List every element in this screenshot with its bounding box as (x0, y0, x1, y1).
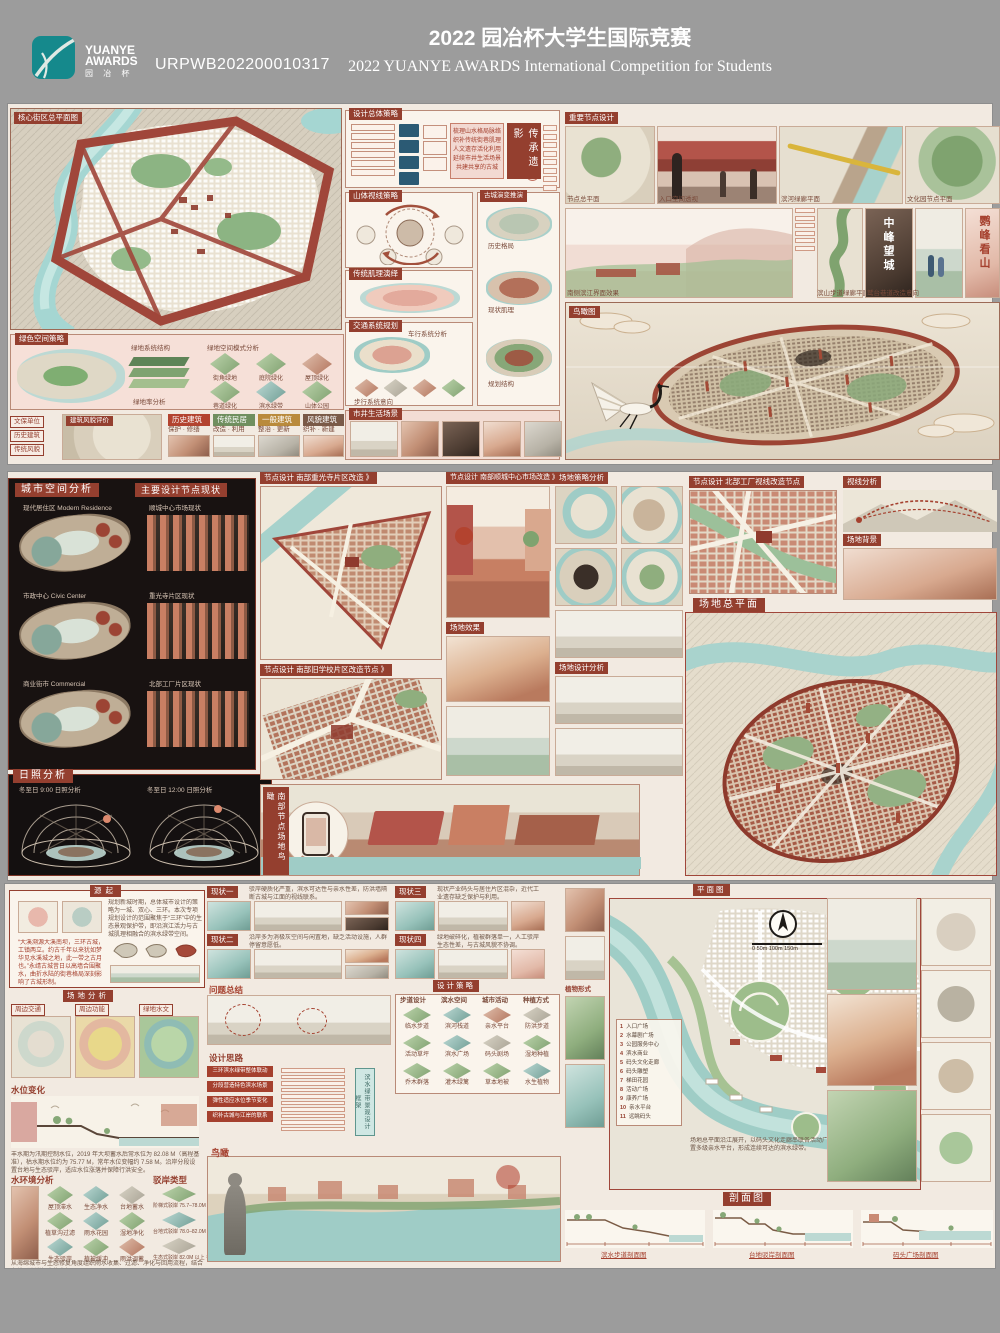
origin-map (18, 901, 58, 933)
overall-strategy-title: 设计总体策略 (349, 108, 402, 120)
design-idea-flow: 三环滨水绿带整体联动 分段营造特色滨水场景 弹性适应水位季节变化 织补古城与江岸… (207, 1064, 391, 1142)
style-card: 一般建筑整治 · 更新 (258, 414, 300, 460)
photo-thumb (213, 435, 255, 457)
tree-canopy (455, 527, 473, 545)
flow-box (543, 142, 557, 148)
photo-thumb (401, 421, 439, 457)
urban-space-title: 城市空间分析 (15, 483, 99, 497)
vertical-title-yingfeng: 鹦峰看山 (976, 215, 992, 271)
evolution-stage-axon (486, 271, 552, 305)
water-level-title: 水位变化 (11, 1084, 45, 1096)
legend-chip: 历史建筑 (10, 430, 44, 442)
statue-silhouette (224, 1185, 246, 1255)
problem-summary-panel: 问题总结 (207, 984, 391, 1046)
style-card: 风貌建筑织补 · 新建 (303, 414, 344, 460)
node-status-title: 主要设计节点现状 (135, 483, 227, 497)
green-tile: 山体公园 (295, 381, 339, 411)
green-tile: 街角绿地 (203, 353, 247, 383)
status-block: 现状二 沿岸多为消极灰空间与闲置地，缺乏活动设施，人群停留意愿低。 (207, 934, 391, 980)
photo-thumb (303, 435, 344, 457)
market-street-perspective (446, 486, 550, 618)
culture-park-plan-image (905, 126, 1000, 204)
photo-thumb (565, 888, 605, 932)
water-level-section (11, 1096, 199, 1148)
node-caption: 节点总平面 (567, 196, 600, 204)
master-plan-title: 场地总平面 (693, 598, 765, 612)
mini-map-column (921, 898, 991, 1190)
traffic-mode-icon (442, 379, 466, 397)
problem-circle (225, 1004, 261, 1036)
flow-box (281, 1075, 345, 1080)
design-idea-label: 设计思路 (209, 1052, 243, 1064)
plant-form-label: 植物形式 (565, 986, 591, 994)
core-district-masterplan-map (10, 108, 342, 330)
water-env-photo (11, 1186, 39, 1260)
photo-thumb (483, 421, 521, 457)
section-caption: 滨水步道剖面图 (601, 1252, 647, 1260)
poster-header: YUANYE AWARDS 园 冶 杯 URPWB202200010317 20… (0, 0, 1000, 96)
traditional-texture-panel: 传统肌理演绎 (345, 270, 473, 318)
sightline-analysis-label: 视线分析 (843, 476, 881, 488)
green-axon-icon (210, 381, 240, 403)
node-caption: 入口空间透视 (659, 196, 698, 204)
flow-box (281, 1120, 345, 1125)
old-city-birdseye (565, 302, 1000, 460)
flow-box (543, 159, 557, 165)
photo-thumb (511, 949, 545, 979)
green-system-axon (17, 349, 125, 403)
green-legend-caption: 绿地率分析 (133, 399, 166, 407)
photo-thumb (345, 901, 389, 915)
flow-box (281, 1081, 345, 1086)
perspective-photo (827, 1090, 917, 1182)
status-section (438, 901, 508, 931)
section-drawing-group: 码头广场剖面图 (861, 1210, 995, 1264)
flow-box-blue (399, 140, 419, 153)
node-status-axon (147, 603, 249, 659)
south-birdseye-label: 南部节点场地鸟瞰 (263, 787, 289, 875)
origin-quote: “大溪溯源大溪南坝，三环古城，工镇两立。约古千年以来犹如梦华见水溪城之地，此一带… (18, 939, 104, 985)
origin-panel: 源起 规划新城时期，总体城市设计的策略为一城、双心、三环。本次专项规划设计的范围… (9, 890, 205, 988)
evolution-stage-caption: 规划结构 (488, 381, 514, 389)
traditional-texture-title: 传统肌理演绎 (349, 268, 402, 280)
flow-box-blue (399, 172, 419, 185)
photo-thumb (565, 1064, 605, 1128)
idea-sub-rows (281, 1068, 345, 1133)
flow-blue-boxes (399, 124, 419, 188)
traffic-axon (354, 337, 430, 373)
site-strategy-title: 场地策略分析 (555, 472, 608, 484)
flow-box (543, 176, 557, 182)
flow-box (281, 1127, 345, 1132)
flow-right-boxes (543, 125, 557, 193)
node-status-axon (147, 691, 249, 747)
traffic-mode-icon (413, 379, 437, 397)
style-card: 历史建筑保护 · 修缮 (168, 414, 210, 460)
site-background-photo (843, 548, 997, 600)
person-silhouette (672, 153, 682, 199)
poster-title-en: 2022 YUANYE AWARDS International Competi… (240, 58, 880, 76)
bank-type-list: 阶梯式驳岸 75.7–78.0M 枯水期 台地式驳岸 78.0–82.0M 常水… (153, 1186, 205, 1262)
traffic-mode-icon (384, 379, 408, 397)
logo-text-cn: 园 冶 杯 (85, 68, 138, 79)
building-evaluation-label: 建筑风貌评价 (66, 416, 113, 426)
temple-district-plan (260, 486, 442, 660)
photo-thumb (345, 917, 389, 931)
masterplan-label: 核心街区总平面图 (14, 112, 82, 124)
waterfront-birdseye (207, 1156, 561, 1262)
node-status-axon (147, 515, 249, 571)
node-status-label: 重光寺片区现状 (149, 593, 195, 601)
idea-box: 弹性适应水位季节变化 (207, 1096, 273, 1107)
riverfront-panorama-image (565, 208, 793, 298)
water-env-note: 从海绵城市与生态修复角度组织雨水收集、过滤、净化与回用流程，结合台地驳岸消解水位… (11, 1260, 203, 1268)
plan-legend: 1入口广场 2水幕剧广场 3公园服务中心 4滨水商业 5码头文化走廊 6码头雕塑… (616, 1019, 682, 1126)
flow-box (281, 1114, 345, 1119)
flow-left-boxes (351, 124, 395, 178)
status-section (254, 901, 342, 931)
birdseye-label: 鸟瞰图 (569, 306, 600, 318)
texture-axon (360, 283, 460, 313)
flow-box (351, 169, 395, 176)
photo-thumb (524, 421, 562, 457)
photo-thumb (350, 421, 398, 457)
section-drawing-group: 台地驳岸剖面图 (713, 1210, 855, 1264)
temple-perspective-image (657, 126, 777, 204)
node4-title: 节点设计 南部旧学校片区改造节点 》 (260, 664, 392, 676)
node-caption: 南侧滨江界面效果 (567, 290, 619, 298)
status-section (438, 949, 508, 979)
status-map (207, 949, 251, 979)
status-block: 现状三 现状产业码头与居住片区混杂，近代工业遗存缺乏保护与利用。 (395, 886, 545, 932)
city-evolution-title: 古城演变推演 (480, 190, 527, 202)
idea-box: 三环滨水绿带整体联动 (207, 1066, 273, 1077)
problem-circle (297, 1008, 327, 1034)
sunpath-dome (15, 793, 137, 873)
analysis-map-hydro (139, 1016, 199, 1078)
yuanye-logo-icon (32, 36, 75, 79)
bank-types-title: 驳岸类型 (153, 1174, 187, 1186)
node-caption: 滨河绿廊平面 (781, 196, 820, 204)
city-evolution-panel: 古城演变推演 历史格局 现状肌理 规划结构 (477, 192, 560, 406)
photo-thumb (345, 949, 389, 963)
green-axon-icon (302, 381, 332, 403)
traffic-plan-panel: 交通系统规划 车行系统分析 步行系统意向 (345, 322, 473, 406)
urban-space-analysis-panel: 城市空间分析 主要设计节点现状 现代居住区 Modern Residence 市… (8, 478, 256, 770)
green-axon-icon (210, 353, 240, 375)
city-axon (16, 597, 133, 664)
node3-title: 节点设计 北部工厂视线改造节点 (689, 476, 804, 488)
flow-box (543, 134, 557, 140)
green-corridor-plan-image (817, 208, 863, 298)
strategy-mini-map (621, 486, 683, 544)
person-silhouette (928, 255, 934, 277)
city-axon (16, 685, 133, 752)
photo-thumb (345, 965, 389, 979)
water-env-title: 水环境分析 (11, 1174, 54, 1186)
master-site-plan (685, 612, 997, 876)
green-axon-icon (302, 353, 332, 375)
building-evaluation-strip: 文保单位 历史建筑 传统风貌 建筑风貌评价 历史建筑保护 · 修缮 传统民居改造… (10, 414, 344, 460)
photo-thumb (258, 435, 300, 457)
building-block (367, 811, 444, 845)
flow-box (543, 168, 557, 174)
photo-thumb (565, 936, 605, 980)
idea-box: 分段营造特色滨水场景 (207, 1081, 273, 1092)
analysis-tab: 周边功能 (75, 1004, 109, 1016)
person-silhouette (720, 171, 726, 197)
sightline-cycle-diagram (350, 203, 470, 265)
flow-box-blue (399, 156, 419, 169)
china-location-maps (110, 939, 200, 961)
idea-output-box: 滨水绿带景观设计框架 (355, 1068, 375, 1136)
heritage-banner: 传承遗影 (507, 123, 541, 179)
building-block (514, 815, 599, 845)
status-block: 现状一 驳岸硬质化严重，滨水可达性与亲水性差，防洪墙隔断古城与江面的视线联系。 (207, 886, 391, 932)
poster-page: { "header":{ "logo_top":"YUANYE","logo_m… (0, 0, 1000, 1333)
photo-mid-peak: 中峰望城 (865, 208, 913, 298)
river-band (261, 857, 641, 869)
water-level-caption: 丰水期为汛期控制水位，2019 年大坝蓄水后常水位为 82.08 M（高程基准）… (11, 1151, 201, 1173)
annotation-row (795, 246, 815, 251)
status-section (254, 949, 342, 979)
legend-chip: 传统风貌 (10, 444, 44, 456)
board-top: 核心街区总平面图 绿色空间策略 绿地系统结构 绿地率分析 绿地空间模式分析 街角… (8, 104, 992, 464)
site-effect-image (446, 706, 550, 776)
flow-mid-boxes (423, 125, 447, 173)
birdseye-label-bottom: 鸟瞰 (211, 1146, 229, 1159)
green-tile: 庭院绿化 (249, 353, 293, 383)
origin-photo (110, 965, 200, 983)
strategy-mini-map (621, 548, 683, 606)
poster-title-cn: 2022 园冶杯大学生国际竞赛 (300, 22, 820, 52)
perspective-photo (827, 898, 917, 990)
photo-thumb (168, 435, 210, 457)
scale-bar: 0 50m 100m 150m (752, 943, 822, 953)
node-status-label: 顺城中心市场现状 (149, 505, 201, 513)
green-layer-diagram (131, 355, 193, 395)
strategy-note-box: 梳理山水格局脉络 织补传统街巷肌理 人文遗存活化利用 延续市井生活场景 共建共享… (450, 123, 504, 179)
city-axon (16, 509, 133, 576)
school-district-plan (260, 678, 442, 780)
flow-box (281, 1101, 345, 1106)
strategy-mini-map (555, 486, 617, 544)
node-status-label: 北部工厂片区现状 (149, 681, 201, 689)
mini-map (921, 970, 991, 1038)
sunpath-dome (143, 793, 265, 873)
water-env-grid: 屋顶滞水 生态净水 台地蓄水 植草沟过滤 雨水花园 湿地净化 生态驳岸 植被缓冲… (43, 1186, 149, 1262)
board-middle: 城市空间分析 主要设计节点现状 现代居住区 Modern Residence 市… (8, 472, 992, 880)
node-caption: 滨山步道绿廊平面 (817, 290, 869, 298)
photo-thumb (442, 421, 480, 457)
flow-box (281, 1088, 345, 1093)
node1-title: 节点设计 南部重光寺片区改造 》 (260, 472, 377, 484)
perspective-photo (827, 994, 917, 1086)
photo-column: 植物形式 (565, 888, 605, 1138)
section-drawing (861, 1210, 993, 1248)
analysis-map-function (75, 1016, 135, 1078)
analysis-map-traffic (11, 1016, 71, 1078)
flow-box (351, 160, 395, 167)
section-caption: 台地驳岸剖面图 (749, 1252, 795, 1260)
annotation-row (795, 223, 815, 228)
node2-title: 节点设计 南部顺城中心市场改造 》 (446, 472, 563, 484)
mini-map (921, 1042, 991, 1110)
annotation-row (795, 216, 815, 221)
flow-box (351, 133, 395, 140)
annotation-row (795, 231, 815, 236)
person-silhouette (750, 169, 757, 199)
site-effect-image (446, 636, 550, 702)
flow-box (351, 142, 395, 149)
mini-map (921, 898, 991, 966)
logo-text-awards: AWARDS (85, 56, 138, 67)
sunlight-title: 日照分析 (13, 769, 73, 783)
strategy-sketch (555, 610, 683, 658)
flow-box-blue (399, 124, 419, 137)
section-drawing (713, 1210, 853, 1248)
vertical-title-zhongfeng: 中峰望城 (880, 217, 896, 273)
traffic-sub-caption: 车行系统分析 (408, 331, 447, 339)
factory-node-plan (689, 490, 837, 594)
origin-map (62, 901, 102, 933)
flow-box (543, 151, 557, 157)
axon-label: 现代居住区 Modern Residence (23, 505, 112, 513)
evolution-stage-axon (486, 339, 552, 377)
status-block: 现状四 绿地破碎化，植被群落单一，人工驳岸生态性差，与古城风貌不协调。 (395, 934, 545, 980)
axon-label: 市政中心 Civic Center (23, 593, 86, 601)
flow-box (351, 151, 395, 158)
annotation-row (795, 208, 815, 213)
status-map (207, 901, 251, 931)
axon-label: 商业街市 Commercial (23, 681, 85, 689)
section-drawing (565, 1210, 705, 1248)
site-effect-label: 场地效果 (446, 622, 484, 634)
flow-box (543, 125, 557, 131)
analysis-tab: 绿地水文 (139, 1004, 173, 1016)
node-plan-image (565, 126, 655, 204)
riverside-plan-image (779, 126, 903, 204)
street-life-title: 市井生活场景 (349, 408, 402, 420)
board-bottom: 源起 规划新城时期，总体城市设计的策略为一城、双心、三环。本次专项规划设计的范围… (5, 884, 995, 1268)
green-axon-icon (256, 353, 286, 375)
origin-paragraph: 规划新城时期，总体城市设计的策略为一城、双心、三环。本次专项规划设计的范围聚焦于… (108, 899, 202, 937)
site-plan-title: 平面图 (693, 884, 730, 896)
evolution-stage-caption: 现状肌理 (488, 307, 514, 315)
sunlight-analysis-panel: 日照分析 冬至日 9:00 日照分析 冬至日 12:00 日照分析 (8, 774, 272, 876)
perspective-column (827, 898, 917, 1190)
key-nodes-title: 重要节点设计 (565, 112, 618, 124)
tree-canopy (523, 531, 539, 547)
design-strategy-title: 设计策略 (433, 980, 479, 992)
analysis-sketch (555, 728, 683, 776)
flow-box (351, 124, 395, 131)
green-caption-left: 绿地系统结构 (131, 345, 170, 353)
idea-box: 织补古城与江岸的联系 (207, 1111, 273, 1122)
analysis-sketch (555, 676, 683, 724)
style-card: 传统民居改造 · 利用 (213, 414, 255, 460)
path-line (787, 143, 901, 176)
flow-box (281, 1094, 345, 1099)
legend-chip: 文保单位 (10, 416, 44, 428)
status-map (395, 901, 435, 931)
street-life-panel: 市井生活场景 (345, 410, 560, 460)
north-compass-icon (768, 909, 798, 939)
green-tile: 滨水绿带 (249, 381, 293, 411)
origin-title: 源起 (90, 885, 121, 897)
traffic-plan-title: 交通系统规划 (349, 320, 402, 332)
building-block (448, 805, 510, 845)
green-strategy-title: 绿色空间策略 (15, 333, 68, 345)
photo-thumb (565, 996, 605, 1060)
green-axon-icon (256, 381, 286, 403)
site-analysis-title: 场地分析 (63, 990, 113, 1002)
site-background-label: 场地背景 (843, 534, 881, 546)
sections-title: 剖面图 (723, 1192, 771, 1206)
analysis-tab: 周边交通 (11, 1004, 45, 1016)
evolution-stage-axon (486, 207, 552, 241)
status-map (395, 949, 435, 979)
evolution-stage-caption: 历史格局 (488, 243, 514, 251)
green-tile: 屋顶绿化 (295, 353, 339, 383)
mountain-sightline-title: 山体视线策略 (349, 190, 402, 202)
design-strategy-panel: 步道设计 滨水空间 城市活动 种植方式 临水步道 滨河栈道 亲水平台 防洪步道 … (395, 994, 560, 1094)
annotation-list (795, 208, 815, 253)
site-design-analysis-label: 场地设计分析 (555, 662, 608, 674)
south-node-birdseye-strip: 南部节点场地鸟瞰 (260, 784, 640, 876)
person-silhouette (938, 257, 944, 277)
annotation-row (795, 238, 815, 243)
flow-box (543, 185, 557, 191)
green-tile: 巷道绿化 (203, 381, 247, 411)
mountain-sightline-panel: 山体视线策略 (345, 192, 473, 268)
node-caption: 鹫台巷道改造意向 (867, 290, 919, 298)
deco-mountain-card: 鹦峰看山 (965, 208, 1000, 298)
photo-thumb (511, 901, 545, 931)
traffic-mode-icon (355, 379, 379, 397)
node-caption: 文化园节点平面 (907, 196, 953, 204)
green-caption-right: 绿地空间模式分析 (207, 345, 259, 353)
green-space-strategy-panel: 绿色空间策略 绿地系统结构 绿地率分析 绿地空间模式分析 街角绿地 庭院绿化 屋… (10, 334, 344, 410)
mini-map (921, 1114, 991, 1182)
section-drawing-group: 滨水步道剖面图 (565, 1210, 707, 1264)
flow-box (281, 1068, 345, 1073)
overall-strategy-panel: 设计总体策略 梳理山水格局脉络 织补传统街巷肌理 人文遗存活化利用 延续市井生活… (345, 110, 560, 188)
sightline-diagram (843, 490, 997, 532)
photo-hill-walk (915, 208, 963, 298)
traffic-caption: 步行系统意向 (354, 399, 393, 407)
strategy-mini-map (555, 548, 617, 606)
section-caption: 码头广场剖面图 (893, 1252, 939, 1260)
flow-box (281, 1107, 345, 1112)
